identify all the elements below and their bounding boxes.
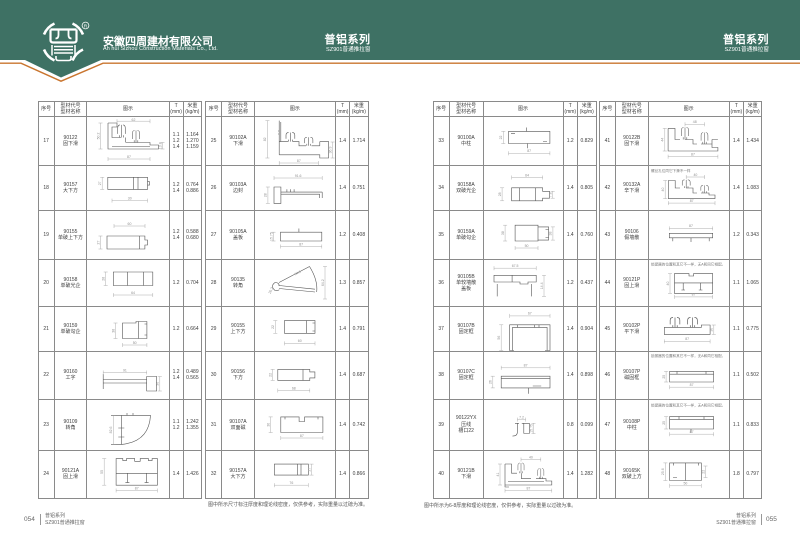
- svg-text:87: 87: [300, 434, 304, 438]
- svg-text:82: 82: [263, 137, 267, 141]
- svg-text:41: 41: [495, 472, 499, 476]
- svg-text:87: 87: [527, 149, 531, 153]
- svg-text:40: 40: [528, 455, 532, 459]
- svg-text:55: 55: [100, 469, 104, 473]
- svg-text:87: 87: [689, 198, 693, 202]
- svg-text:26: 26: [488, 380, 492, 384]
- svg-text:22: 22: [268, 372, 272, 376]
- svg-text:40: 40: [661, 187, 665, 191]
- svg-text:56: 56: [497, 335, 501, 339]
- svg-text:87: 87: [134, 486, 138, 490]
- svg-text:87: 87: [689, 383, 693, 387]
- svg-text:87: 87: [689, 224, 693, 228]
- svg-text:87: 87: [297, 158, 301, 162]
- svg-text:64: 64: [131, 290, 135, 294]
- svg-text:87: 87: [685, 337, 689, 341]
- svg-text:38: 38: [500, 231, 504, 235]
- svg-text:螺丝孔位同它下滑不一样: 螺丝孔位同它下滑不一样: [651, 168, 691, 173]
- svg-text:28: 28: [497, 192, 501, 196]
- svg-text:87: 87: [299, 242, 303, 246]
- svg-text:44: 44: [660, 137, 664, 141]
- svg-text:26.2: 26.2: [268, 286, 275, 294]
- svg-text:R: R: [84, 23, 88, 29]
- svg-text:13.8: 13.8: [158, 142, 162, 149]
- svg-text:87: 87: [691, 292, 695, 296]
- svg-text:87: 87: [127, 154, 131, 158]
- svg-text:87: 87: [691, 152, 695, 156]
- svg-text:50.2: 50.2: [96, 132, 100, 139]
- svg-text:67.5: 67.5: [511, 264, 518, 268]
- svg-text:82.6: 82.6: [109, 426, 113, 433]
- svg-text:22: 22: [271, 324, 275, 328]
- svg-text:锁紧器的位置和其它不一样，无A和同它相配。: 锁紧器的位置和其它不一样，无A和同它相配。: [651, 261, 725, 266]
- svg-text:67: 67: [527, 311, 531, 315]
- svg-text:60: 60: [127, 221, 131, 225]
- svg-text:22: 22: [499, 135, 503, 139]
- svg-text:50: 50: [524, 243, 528, 247]
- svg-text:91.6: 91.6: [294, 173, 301, 177]
- svg-text:27: 27: [307, 467, 311, 471]
- svg-text:30: 30: [127, 196, 131, 200]
- svg-text:64: 64: [525, 173, 529, 177]
- svg-text:48: 48: [692, 120, 696, 124]
- svg-text:锁紧器的位置和其它不一样，无A和同它相配。: 锁紧器的位置和其它不一样，无A和同它相配。: [651, 353, 725, 358]
- svg-text:68: 68: [292, 386, 296, 390]
- svg-text:64.9: 64.9: [293, 269, 301, 276]
- svg-text:76: 76: [289, 481, 293, 485]
- svg-text:25: 25: [661, 421, 665, 425]
- svg-text:50: 50: [132, 340, 136, 344]
- svg-text:87: 87: [523, 363, 527, 367]
- svg-text:28: 28: [101, 276, 105, 280]
- svg-text:25.6: 25.6: [661, 468, 665, 475]
- svg-text:87: 87: [689, 430, 693, 434]
- svg-text:30: 30: [155, 381, 159, 385]
- svg-text:87: 87: [526, 486, 530, 490]
- svg-text:7.8: 7.8: [548, 192, 552, 197]
- svg-text:50: 50: [683, 481, 687, 485]
- svg-text:25: 25: [661, 374, 665, 378]
- svg-text:14.4: 14.4: [539, 282, 543, 289]
- svg-text:38: 38: [111, 328, 115, 332]
- svg-text:91: 91: [122, 368, 126, 372]
- svg-text:38: 38: [548, 231, 552, 235]
- svg-text:27: 27: [98, 181, 102, 185]
- svg-text:锁紧器的位置和其它不一样，无A和同它相配。: 锁紧器的位置和其它不一样，无A和同它相配。: [651, 403, 725, 408]
- svg-text:64.2: 64.2: [321, 279, 325, 286]
- svg-text:15.75: 15.75: [529, 424, 533, 433]
- svg-text:60: 60: [298, 339, 302, 343]
- svg-text:40: 40: [693, 172, 697, 176]
- svg-text:30: 30: [709, 327, 713, 331]
- svg-text:22: 22: [701, 469, 705, 473]
- svg-text:15.75: 15.75: [269, 232, 273, 241]
- svg-text:40: 40: [665, 281, 669, 285]
- svg-text:62: 62: [131, 118, 135, 122]
- svg-text:7.2: 7.2: [519, 415, 524, 419]
- svg-text:36.9: 36.9: [328, 146, 332, 153]
- svg-text:30: 30: [266, 423, 270, 427]
- svg-text:28: 28: [263, 193, 267, 197]
- svg-text:27: 27: [96, 240, 100, 244]
